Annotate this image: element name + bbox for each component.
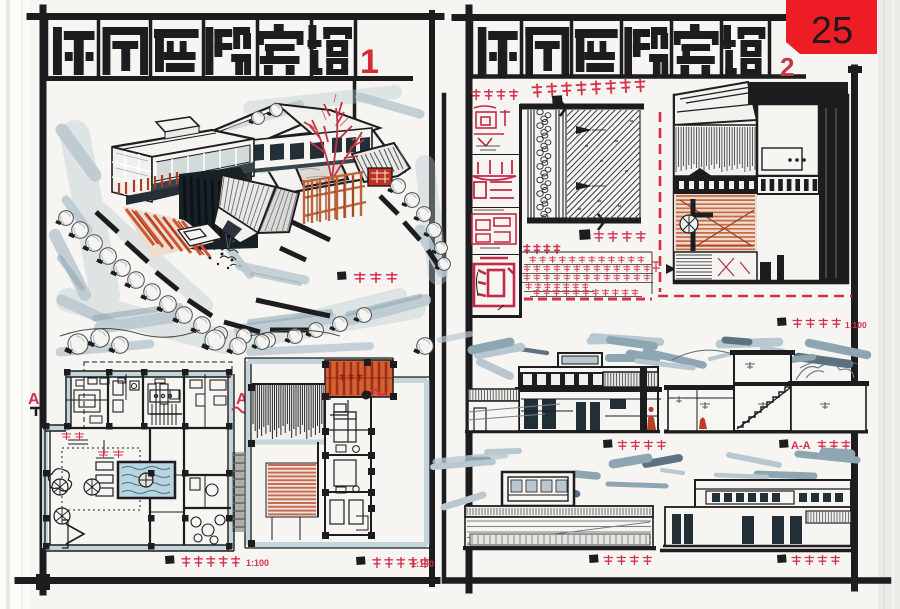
svg-text:25: 25 (811, 10, 853, 52)
svg-text:1:100: 1:100 (845, 320, 867, 330)
svg-text:A: A (28, 391, 40, 408)
svg-text:A-A: A-A (791, 440, 811, 452)
svg-text:2: 2 (780, 52, 794, 82)
svg-text:1: 1 (360, 43, 379, 81)
svg-text:1:100: 1:100 (246, 558, 269, 568)
svg-text:1:100: 1:100 (411, 559, 434, 569)
